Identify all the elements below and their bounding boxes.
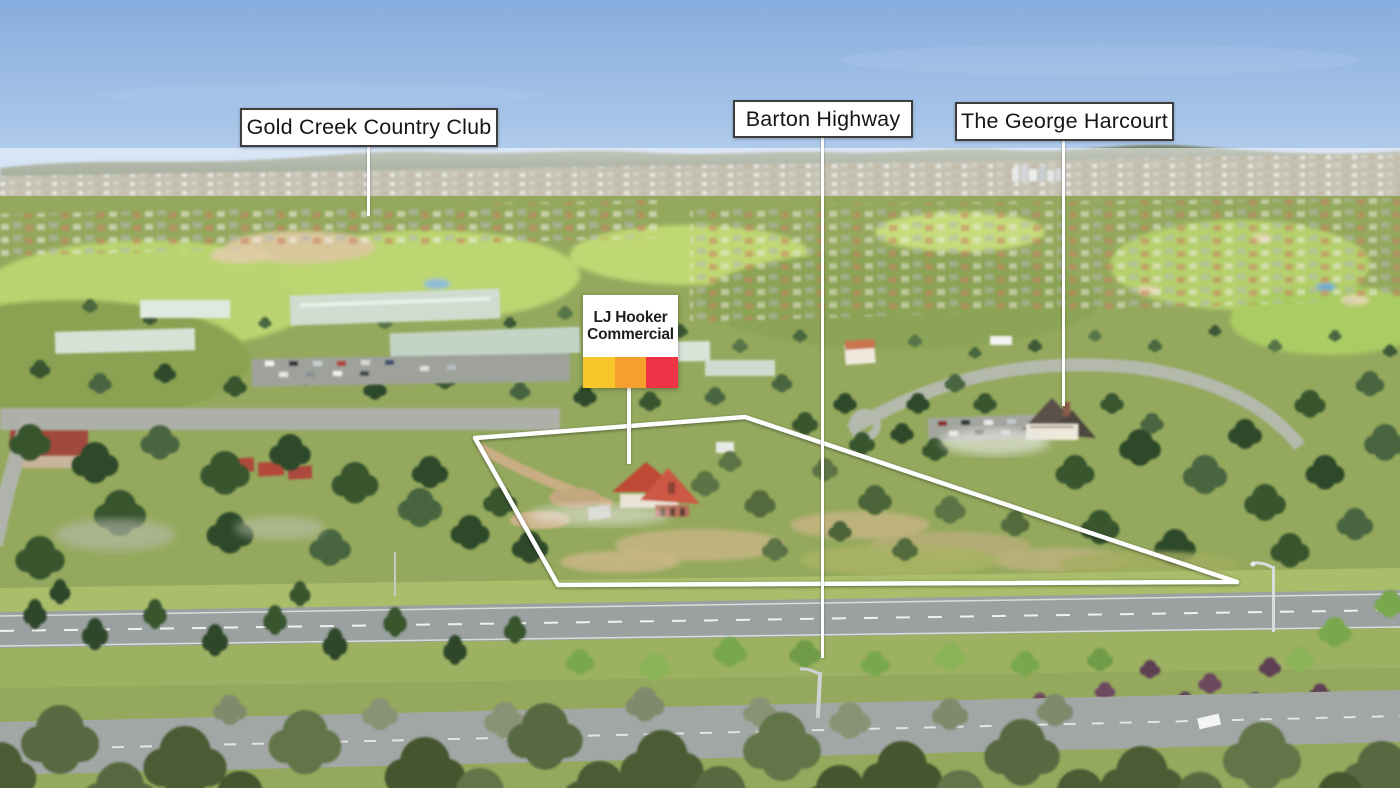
callout-the-george-harcourt: The George Harcourt bbox=[955, 102, 1174, 141]
callout-barton-highway: Barton Highway bbox=[733, 100, 913, 138]
logo-band-gold bbox=[583, 357, 615, 388]
aerial-photo: Gold Creek Country Club Barton Highway T… bbox=[0, 0, 1400, 788]
callout-gold-creek-country-club: Gold Creek Country Club bbox=[240, 108, 498, 147]
lj-hooker-commercial-logo: LJ Hooker Commercial bbox=[583, 295, 678, 388]
village-car-park bbox=[252, 353, 570, 387]
leader-line-barton-highway bbox=[821, 137, 824, 658]
bus bbox=[990, 336, 1012, 345]
logo-band-red bbox=[646, 357, 678, 388]
pond bbox=[424, 279, 450, 289]
logo-line-2: Commercial bbox=[587, 326, 674, 343]
logo-band-orange bbox=[615, 357, 647, 388]
lamp-head bbox=[1251, 562, 1256, 567]
leader-line-gold-creek-country-club bbox=[367, 146, 370, 216]
logo-color-band bbox=[583, 357, 678, 388]
leader-line-the-george-harcourt bbox=[1062, 140, 1065, 406]
aerial-scene bbox=[0, 0, 1400, 788]
logo-wordmark: LJ Hooker Commercial bbox=[583, 295, 678, 357]
leader-line-logo-to-cottage bbox=[627, 387, 631, 464]
logo-line-1: LJ Hooker bbox=[594, 309, 668, 326]
